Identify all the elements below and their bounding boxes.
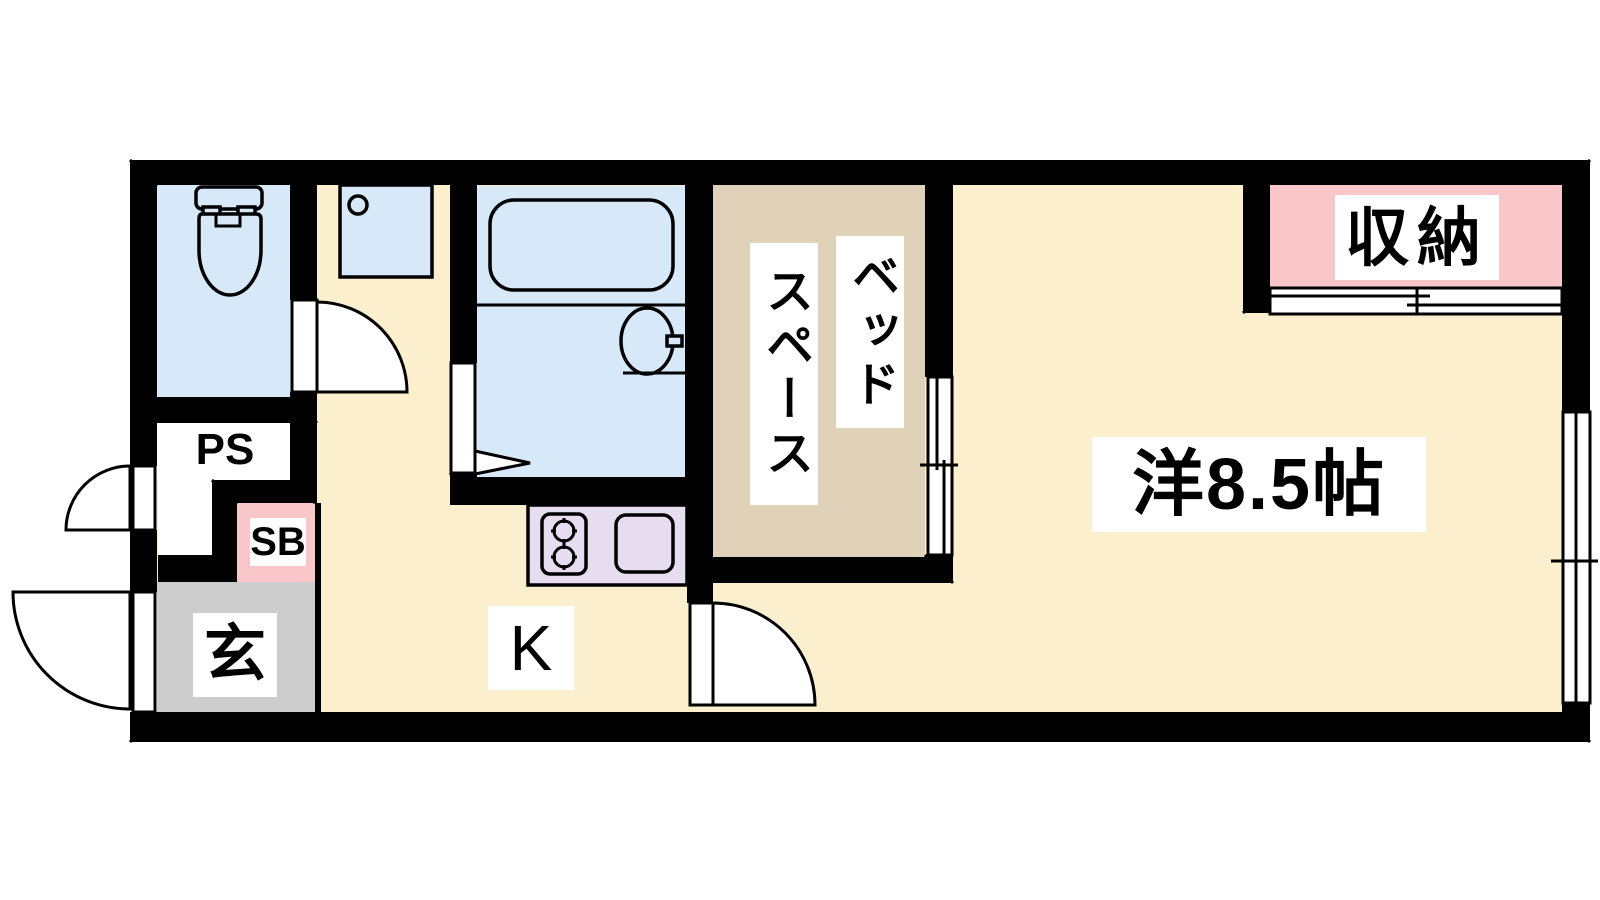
wall-bedspace-bottom [687, 557, 953, 583]
wall-bathroom-left-upper [450, 185, 477, 363]
kitchen-sink [616, 515, 673, 572]
wall-left-upper [130, 160, 157, 466]
kitchen-stove-fixture [528, 505, 687, 585]
wall-toilet-right-lower [290, 392, 317, 480]
wall-bathroom-bottom [450, 477, 688, 505]
storage-label: 収納 [1335, 195, 1499, 280]
bathroom-door-panel [451, 363, 475, 473]
bathroom-vanity-faucet [667, 336, 682, 346]
wall-toilet-bottom [157, 397, 290, 423]
wall-left-middle [130, 530, 157, 592]
toilet-door-panel [292, 300, 317, 392]
entrance-label: 玄 [193, 613, 277, 697]
room-pipe-space-lower [158, 480, 212, 555]
kitchen-label: K [488, 606, 574, 690]
wall-storage-stub [1243, 185, 1270, 313]
wall-left-of-shoe-box [212, 480, 237, 582]
washbasin-fixture [340, 185, 432, 277]
bed-space-label-col2: スペース [750, 243, 818, 505]
wall-below-pipe-space [158, 555, 212, 582]
service-door-swing [66, 466, 130, 530]
wall-kitchen-main-stub [687, 583, 713, 603]
toilet-fixture [196, 187, 262, 295]
western-room-label: 洋8.5帖 [1092, 437, 1426, 532]
wall-top [130, 160, 1590, 185]
entrance-door-swing [13, 592, 130, 709]
bathroom-vanity-bowl [621, 308, 673, 374]
kitchen-door-panel [690, 603, 713, 705]
wall-bottom [130, 712, 1590, 742]
entrance-door-panel [133, 592, 155, 712]
wall-bedspace-right-upper [925, 185, 953, 377]
floor-plan-page: PS SB 玄 K ベッド スペース 収納 洋8.5帖 [0, 0, 1600, 900]
wall-above-shoe-box [237, 480, 317, 503]
service-door-panel [133, 466, 155, 530]
wall-toilet-right-upper [290, 185, 317, 300]
shoe-box-label: SB [250, 518, 306, 566]
pipe-space-label: PS [182, 424, 268, 476]
wall-bath-bedspace-divider [685, 185, 713, 557]
wall-hall-divider-thin [315, 503, 321, 712]
wall-right-upper [1562, 160, 1590, 412]
bed-space-label-col1: ベッド [836, 236, 904, 428]
